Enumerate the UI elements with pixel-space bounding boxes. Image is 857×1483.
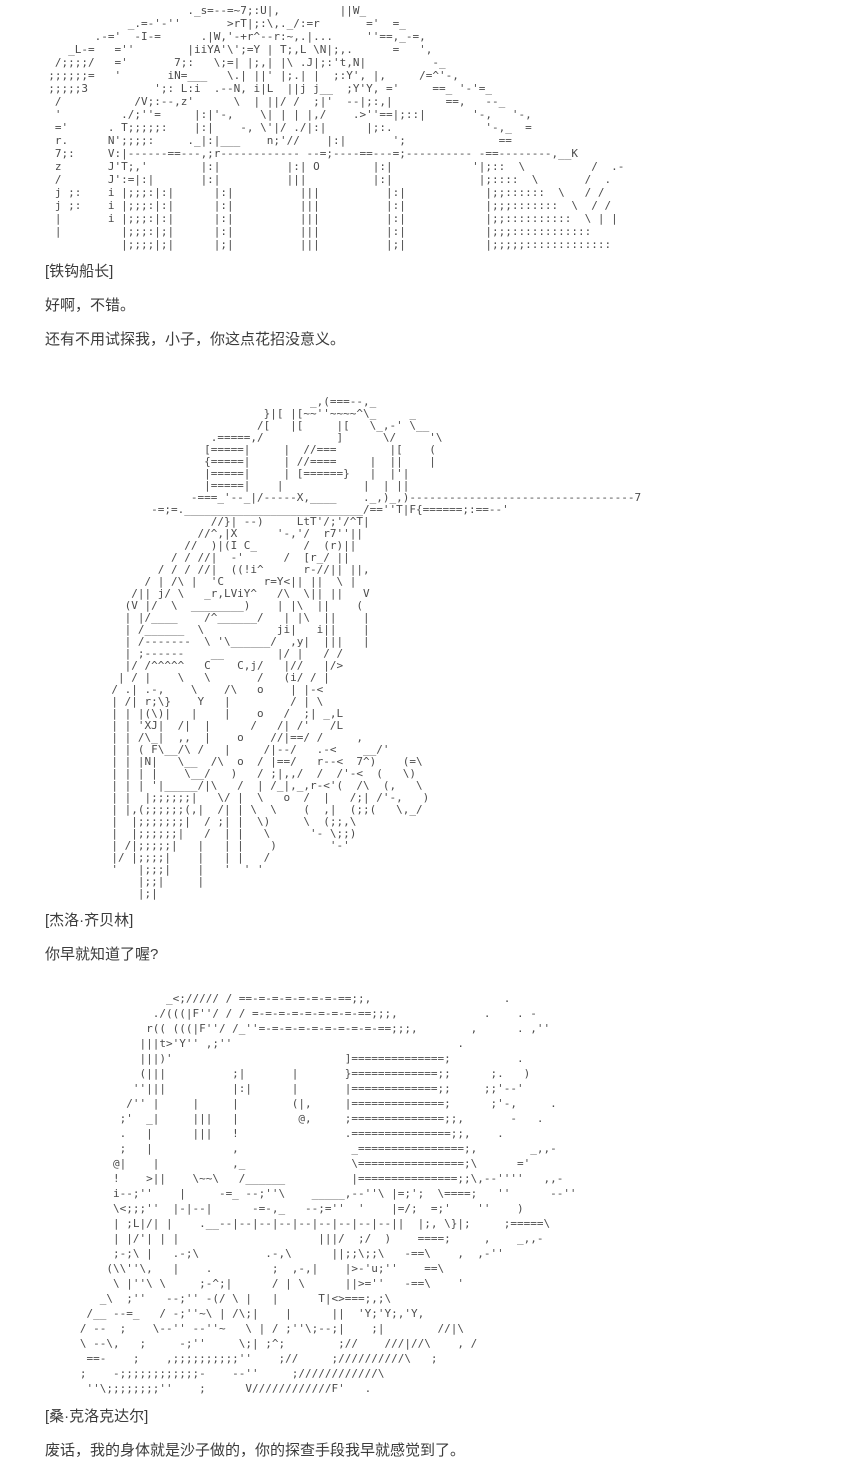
dialogue-line: 废话，我的身体就是沙子做的，你的探查手段我早就感觉到了。 <box>45 1441 857 1461</box>
speaker-name-crocodile: [桑·克洛克达尔] <box>45 1407 857 1427</box>
speaker-name-gyro-zeppeli: [杰洛·齐贝林] <box>45 911 857 931</box>
dialogue-line: 还有不用试探我，小子，你这点花招没意义。 <box>45 330 857 350</box>
speaker-name-captain-hook: [铁钩船长] <box>45 262 857 282</box>
captain-hook-ascii-art: ._s=--=~7;:U|, ||W_ _.=-'-'' >rT|;:\,._/… <box>35 4 857 251</box>
dialogue-line: 好啊，不错。 <box>45 296 857 316</box>
dialogue-captain-hook: [铁钩船长] 好啊，不错。 还有不用试探我，小子，你这点花招没意义。 <box>45 262 857 350</box>
dialogue-gyro-zeppeli: [杰洛·齐贝林] 你早就知道了喔? <box>45 911 857 965</box>
dialogue-crocodile: [桑·克洛克达尔] 废话，我的身体就是沙子做的，你的探查手段我早就感觉到了。 <box>45 1407 857 1461</box>
crocodile-ascii-art: _<;///// / ==-=-=-=-=-=-=-==;;, . ./(((|… <box>60 991 857 1396</box>
dialogue-line: 你早就知道了喔? <box>45 945 857 965</box>
thread-page: ._s=--=~7;:U|, ||W_ _.=-'-'' >rT|;:\,._/… <box>0 4 857 1483</box>
gyro-zeppeli-ascii-art: _,(===--,_ }|[ |[~~''~~~~^\_ _ /[ |[ |[ … <box>65 396 857 900</box>
